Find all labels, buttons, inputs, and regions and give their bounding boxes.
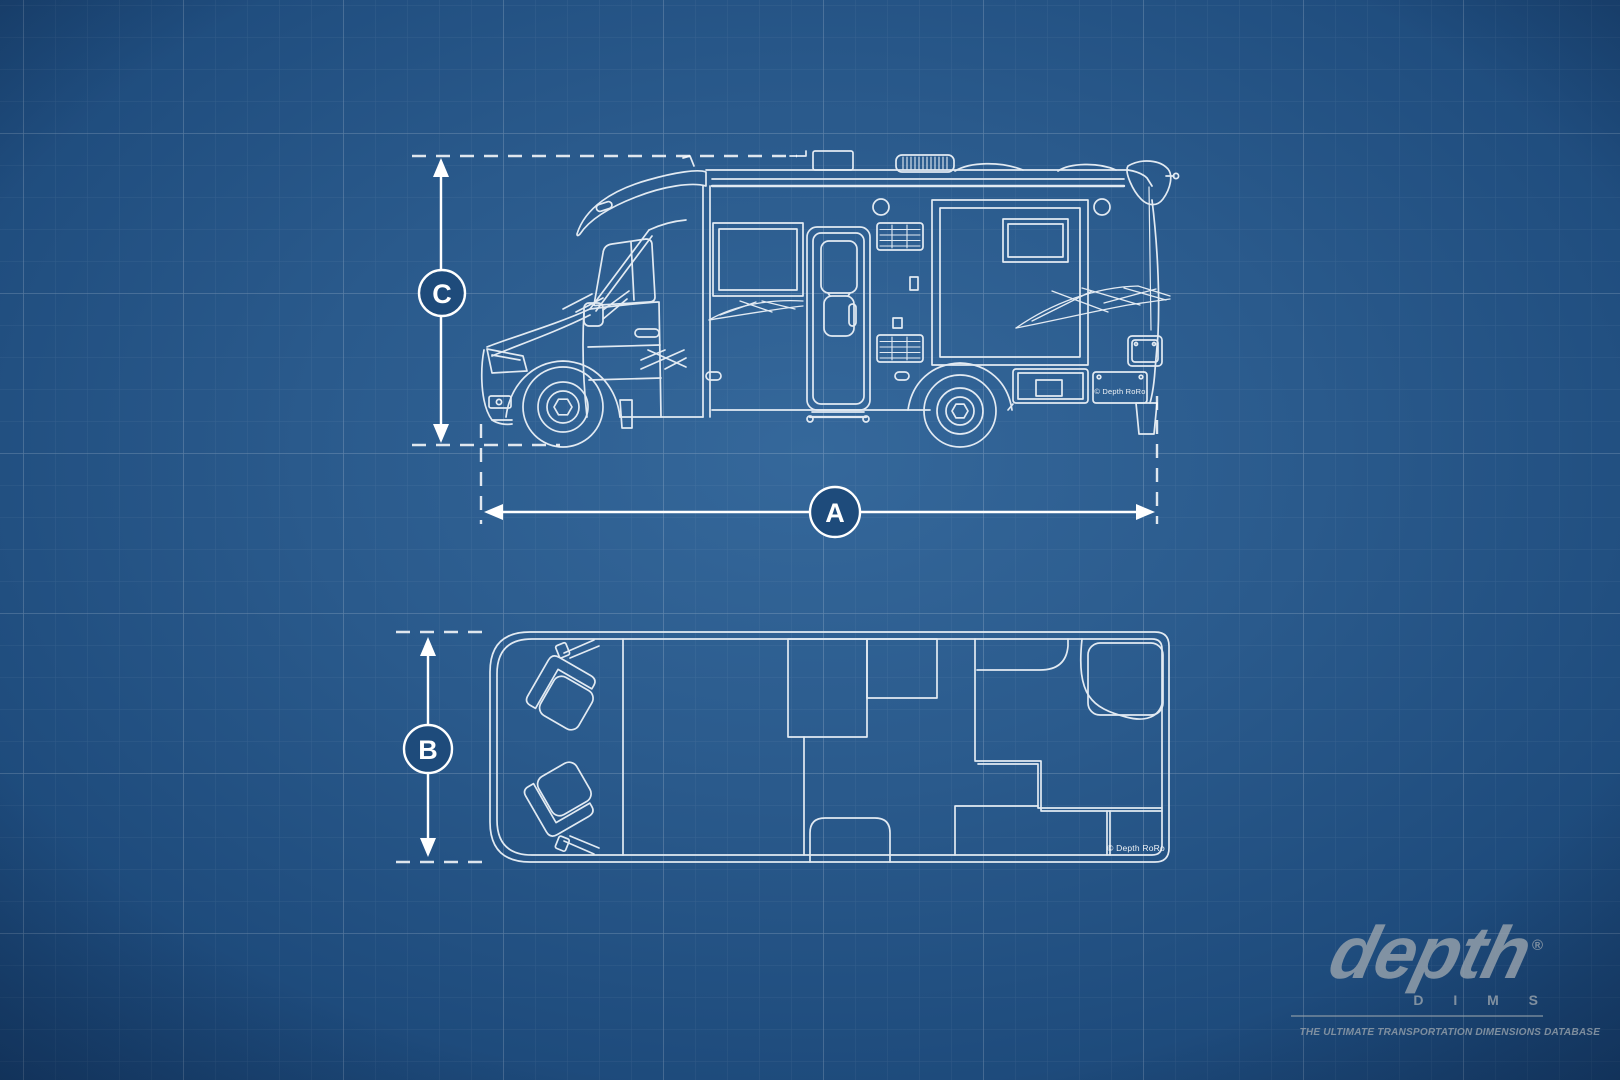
- logo-tagline: THE ULTIMATE TRANSPORTATION DIMENSIONS D…: [1300, 1026, 1601, 1038]
- label-width: B: [418, 735, 438, 765]
- label-length: A: [825, 498, 845, 528]
- label-height: C: [432, 279, 452, 309]
- logo-divider: [1291, 1015, 1543, 1017]
- logo: depth® D I M S THE ULTIMATE TRANSPORTATI…: [1287, 916, 1543, 1040]
- side-view-watermark: © Depth RoRo: [1094, 387, 1145, 396]
- blueprint-page: © Depth RoRo C A: [0, 0, 1620, 1080]
- logo-brand: depth: [1322, 916, 1537, 990]
- floor-plan-watermark: © Depth RoRo: [1107, 843, 1165, 853]
- logo-dims: D I M S: [1287, 992, 1551, 1008]
- registered-mark-icon: ®: [1532, 938, 1543, 953]
